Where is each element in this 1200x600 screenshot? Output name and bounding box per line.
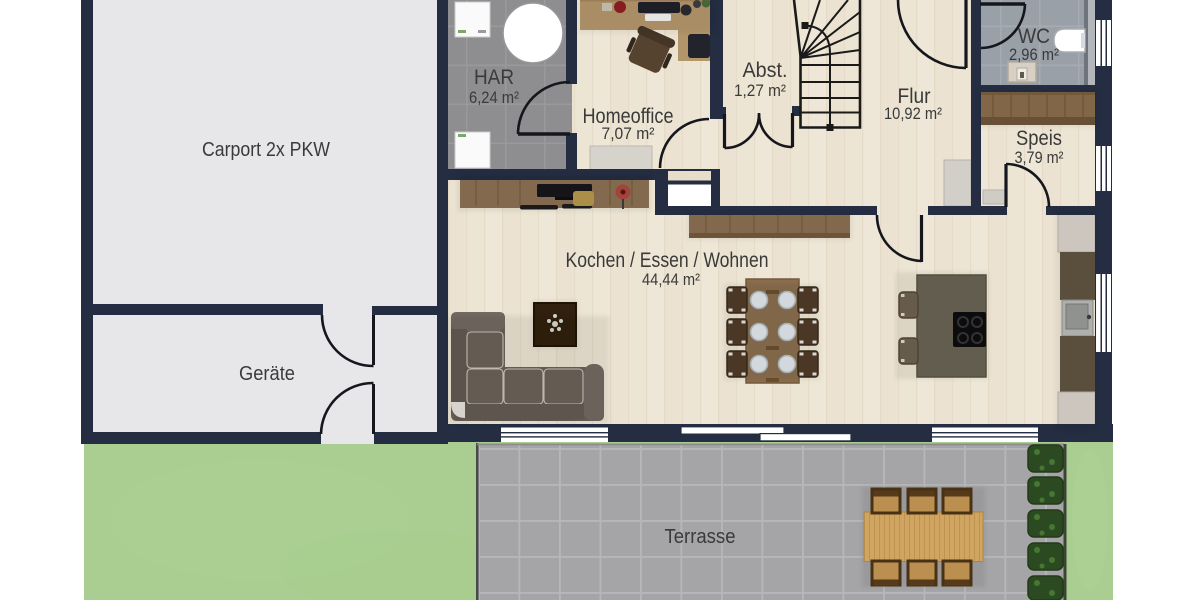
svg-text:10,92 m²: 10,92 m² xyxy=(884,104,942,123)
svg-text:7,07 m²: 7,07 m² xyxy=(602,124,655,143)
svg-text:Kochen / Essen / Wohnen: Kochen / Essen / Wohnen xyxy=(566,249,769,272)
svg-text:Speis: Speis xyxy=(1016,127,1062,150)
svg-text:2,96 m²: 2,96 m² xyxy=(1009,45,1059,64)
svg-text:44,44 m²: 44,44 m² xyxy=(642,270,700,289)
svg-text:Terrasse: Terrasse xyxy=(665,526,736,548)
svg-text:HAR: HAR xyxy=(474,66,514,89)
svg-text:6,24 m²: 6,24 m² xyxy=(469,88,519,107)
svg-text:Carport 2x PKW: Carport 2x PKW xyxy=(202,139,330,161)
svg-text:3,79 m²: 3,79 m² xyxy=(1015,148,1064,167)
svg-text:1,27 m²: 1,27 m² xyxy=(734,81,786,100)
svg-text:Geräte: Geräte xyxy=(239,363,295,385)
svg-text:Abst.: Abst. xyxy=(743,59,788,82)
